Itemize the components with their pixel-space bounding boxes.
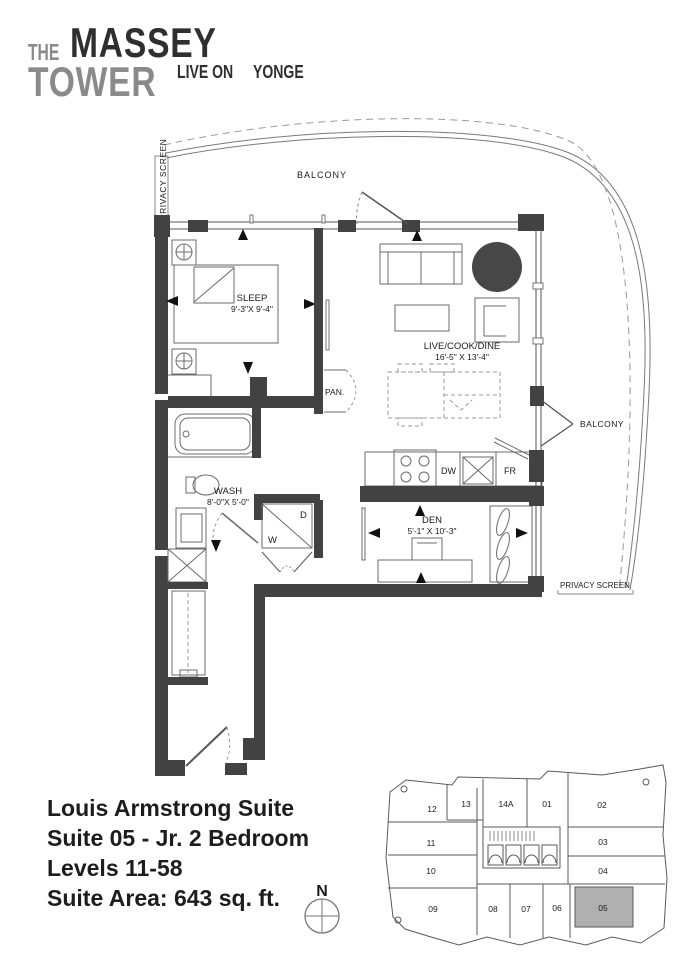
- keyplan-suite-06: 06: [552, 903, 562, 913]
- sleep-wash-wall: [168, 396, 316, 408]
- sleep-dim: 9'-3"X 9'-4": [231, 304, 273, 314]
- dining-table-optional: [388, 364, 500, 426]
- kitchen: [365, 438, 542, 487]
- fridge-door: [494, 442, 528, 459]
- den-sliding-door: [362, 508, 365, 560]
- living-room: [380, 242, 522, 426]
- keyplan-suite-11: 11: [427, 838, 436, 848]
- washer-label: W: [268, 535, 277, 546]
- live-label: LIVE/COOK/DINE: [424, 341, 501, 352]
- balcony-top-label: BALCONY: [297, 170, 347, 180]
- wash-room: [168, 398, 261, 552]
- wash-label: WASH: [214, 486, 242, 497]
- suite-info: Louis Armstrong Suite Suite 05 - Jr. 2 B…: [47, 793, 309, 913]
- wash-door-leaf: [222, 513, 258, 543]
- sleep-label: SLEEP: [237, 293, 268, 304]
- keyplan-suite-13: 13: [461, 799, 471, 809]
- desk-chair: [412, 538, 442, 560]
- wash-dim: 8'-0"X 5'-0": [207, 497, 249, 507]
- sleep-room: [166, 240, 316, 397]
- keyplan-suite-08: 08: [488, 904, 498, 914]
- live-dim: 16'-5" X 13'-4": [435, 352, 489, 362]
- armchair: [475, 298, 519, 342]
- compass-north-label: N: [316, 883, 328, 900]
- den-south-wall: [254, 584, 542, 597]
- pantry-label: PAN.: [325, 387, 344, 397]
- rug: [472, 242, 522, 292]
- balcony-right-label: BALCONY: [580, 419, 624, 429]
- privacy-screen-bottom: PRIVACY SCREEN: [558, 581, 633, 594]
- shower: [168, 549, 208, 589]
- stove: [394, 450, 436, 487]
- entry-hall: [186, 596, 265, 775]
- top-window-wall: [154, 192, 544, 241]
- closet-door-leaf: [294, 552, 312, 572]
- kitchen-den-wall: [360, 486, 542, 502]
- desk: [378, 560, 472, 582]
- keyplan-suite-05: 05: [598, 903, 608, 913]
- dryer-label: D: [300, 510, 307, 521]
- privacy-screen-left: PRIVACY SCREEN: [155, 139, 168, 222]
- den-dim: 5'-1" X 10'-3": [408, 526, 457, 536]
- den-label: DEN: [422, 515, 442, 526]
- den-closet: [490, 506, 532, 582]
- suite-levels: Levels 11-58: [47, 853, 309, 883]
- balcony-door-leaf: [362, 192, 408, 224]
- laundry-closet: [254, 494, 323, 572]
- hall-closet: [168, 591, 208, 685]
- compass: N: [305, 883, 339, 933]
- privacy-screen-left-label: PRIVACY SCREEN: [158, 139, 168, 220]
- keyplan-suite-03: 03: [598, 837, 608, 847]
- coffee-table: [395, 305, 449, 331]
- sliding-door: [326, 300, 329, 350]
- keyplan-suite-12: 12: [427, 804, 437, 814]
- keyplan-suite-09: 09: [428, 904, 438, 914]
- right-window-wall: [528, 230, 573, 592]
- balcony-door-right-leaf: [541, 400, 573, 424]
- entry-door-leaf: [186, 727, 227, 766]
- balcony-curve: [164, 119, 650, 591]
- den: [362, 505, 532, 585]
- suite-area: Suite Area: 643 sq. ft.: [47, 883, 309, 913]
- bathtub: [175, 414, 255, 454]
- suite-name: Louis Armstrong Suite: [47, 793, 309, 823]
- suite-number-type: Suite 05 - Jr. 2 Bedroom: [47, 823, 309, 853]
- keyplan-suite-10: 10: [426, 866, 436, 876]
- keyplan-suite-07: 07: [521, 904, 531, 914]
- keyplan-suite-04: 04: [598, 866, 608, 876]
- keyplan-suite-01: 01: [542, 799, 552, 809]
- left-wall: [155, 222, 185, 776]
- key-plan: 12 13 14A 01 02 11 03 10 04 09 08 07 06 …: [386, 765, 667, 945]
- keyplan-suite-02: 02: [597, 800, 607, 810]
- fr-label: FR: [504, 466, 516, 476]
- dw-label: DW: [441, 466, 456, 476]
- keyplan-suite-14A: 14A: [498, 799, 513, 809]
- closet-door-leaf: [262, 552, 280, 572]
- privacy-screen-bottom-label: PRIVACY SCREEN: [560, 581, 630, 590]
